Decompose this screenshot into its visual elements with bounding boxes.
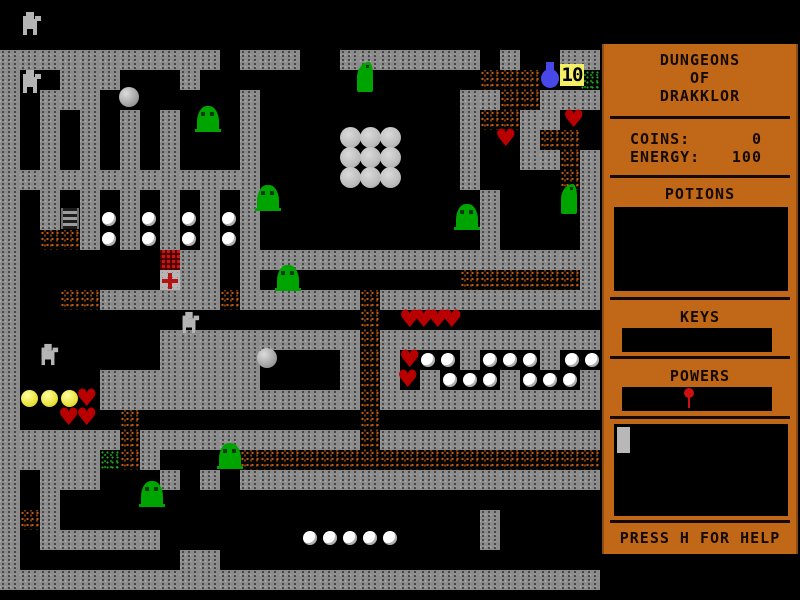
tile-wall xyxy=(80,450,100,470)
tile-wall xyxy=(200,210,220,230)
tile-wall xyxy=(0,350,20,370)
tile-wall xyxy=(440,470,460,490)
tile-wall xyxy=(60,450,80,470)
tile-dirt xyxy=(360,390,380,410)
tile-wall xyxy=(540,90,560,110)
tile-wall xyxy=(120,170,140,190)
tile-dirt xyxy=(360,410,380,430)
tile-wall xyxy=(260,430,280,450)
pearl-sprite xyxy=(102,232,116,246)
badge-sprite: 10 xyxy=(560,64,584,86)
tile-wall xyxy=(520,430,540,450)
tile-wall xyxy=(180,390,200,410)
tile-wall xyxy=(40,510,60,530)
tile-wall xyxy=(360,570,380,590)
tile-wall xyxy=(0,170,20,190)
tile-wall xyxy=(80,50,100,70)
game-title-line2: OF xyxy=(604,69,796,87)
tile-dirt xyxy=(360,350,380,370)
tile-wall xyxy=(0,430,20,450)
tile-wall xyxy=(80,90,100,110)
tile-wall xyxy=(160,210,180,230)
tile-wall xyxy=(540,250,560,270)
tile-wall xyxy=(0,490,20,510)
slime-sprite xyxy=(197,106,219,132)
tile-wall xyxy=(460,430,480,450)
tile-dirt xyxy=(460,450,480,470)
tile-dirt xyxy=(360,370,380,390)
tile-wall xyxy=(120,530,140,550)
keys-label: KEYS xyxy=(604,308,796,326)
pearl-sprite xyxy=(182,232,196,246)
tile-wall xyxy=(260,330,280,350)
tile-wall xyxy=(220,390,240,410)
tile-wall xyxy=(0,450,20,470)
tile-wall xyxy=(240,570,260,590)
tile-wall xyxy=(580,170,600,190)
tile-wall xyxy=(160,170,180,190)
pearl-sprite xyxy=(443,373,457,387)
tile-wall xyxy=(60,430,80,450)
tile-wall xyxy=(220,350,240,370)
tile-wall xyxy=(340,430,360,450)
tile-wall xyxy=(40,110,60,130)
tile-wall xyxy=(40,470,60,490)
tile-dirt xyxy=(520,70,540,90)
tile-wall xyxy=(120,290,140,310)
tile-wall xyxy=(160,110,180,130)
tile-wall xyxy=(80,110,100,130)
tile-moss xyxy=(100,450,120,470)
tile-wall xyxy=(480,230,500,250)
pearl-sprite xyxy=(503,353,517,367)
tile-wall xyxy=(240,470,260,490)
tile-wall xyxy=(200,330,220,350)
bigpearl-sprite xyxy=(340,167,361,188)
bigpearl-sprite xyxy=(380,127,401,148)
tile-dirt xyxy=(580,450,600,470)
tile-wall xyxy=(120,210,140,230)
tile-wall xyxy=(60,50,80,70)
tile-dirt xyxy=(360,290,380,310)
tile-wall xyxy=(440,430,460,450)
keys-box xyxy=(622,328,772,352)
tile-wall xyxy=(120,190,140,210)
tile-wall xyxy=(240,210,260,230)
tile-wall xyxy=(520,390,540,410)
pearl-sprite xyxy=(142,212,156,226)
tile-wall xyxy=(280,390,300,410)
tile-wall xyxy=(20,450,40,470)
tile-wall xyxy=(240,110,260,130)
tile-wall xyxy=(80,170,100,190)
tile-wall xyxy=(460,150,480,170)
tile-wall xyxy=(520,150,540,170)
pearl-sprite xyxy=(182,212,196,226)
tile-wall xyxy=(0,230,20,250)
boulder-sprite xyxy=(119,87,139,107)
pearl-sprite xyxy=(343,531,357,545)
tile-wall xyxy=(520,570,540,590)
tile-wall xyxy=(140,170,160,190)
tile-wall xyxy=(320,330,340,350)
tile-wall xyxy=(400,50,420,70)
tile-wall xyxy=(420,50,440,70)
tile-wall xyxy=(240,430,260,450)
tile-wall xyxy=(140,450,160,470)
pearl-sprite xyxy=(441,353,455,367)
tile-wall xyxy=(240,250,260,270)
tile-wall xyxy=(520,470,540,490)
tile-wall xyxy=(120,150,140,170)
tile-wall xyxy=(480,530,500,550)
tile-wall xyxy=(60,530,80,550)
tile-wall xyxy=(560,470,580,490)
tile-wall xyxy=(220,370,240,390)
tile-wall xyxy=(160,330,180,350)
tile-wall xyxy=(420,390,440,410)
tile-wall xyxy=(60,570,80,590)
slime-sprite xyxy=(141,481,163,507)
tile-wall xyxy=(160,50,180,70)
tile-wall xyxy=(20,170,40,190)
tile-wall xyxy=(540,290,560,310)
tile-wall xyxy=(300,570,320,590)
tile-wall xyxy=(0,130,20,150)
tile-dirt xyxy=(500,270,520,290)
tile-wall xyxy=(240,50,260,70)
tile-wall xyxy=(540,110,560,130)
tile-wall xyxy=(280,330,300,350)
tile-chest xyxy=(160,250,180,270)
tile-wall xyxy=(580,210,600,230)
tile-wall xyxy=(580,330,600,350)
robot-sprite xyxy=(22,12,38,35)
powers-box xyxy=(622,387,772,411)
tile-wall xyxy=(100,370,120,390)
tile-dirt xyxy=(220,290,240,310)
tile-wall xyxy=(460,290,480,310)
tile-wall xyxy=(120,110,140,130)
help-text: PRESS H FOR HELP xyxy=(604,529,796,547)
heart-sprite: ♥ xyxy=(397,370,417,390)
pearl-sprite xyxy=(363,531,377,545)
tile-wall xyxy=(0,330,20,350)
boulder-sprite xyxy=(257,348,277,368)
tile-wall xyxy=(140,370,160,390)
tile-wall xyxy=(160,130,180,150)
tile-dirt xyxy=(500,450,520,470)
tile-wall xyxy=(460,90,480,110)
slime-sprite xyxy=(219,443,241,469)
coins-stat: COINS: 0 xyxy=(630,130,762,148)
tile-wall xyxy=(340,50,360,70)
coins-value: 0 xyxy=(752,130,762,148)
pearl-sprite xyxy=(463,373,477,387)
tile-dirt xyxy=(120,430,140,450)
tile-wall xyxy=(200,370,220,390)
tile-dirt xyxy=(300,450,320,470)
tile-wall xyxy=(340,470,360,490)
dungeon-map: 10♥♥♥♥♥♥♥♥♥♥♥ xyxy=(0,0,600,600)
tile-wall xyxy=(240,130,260,150)
tile-wall xyxy=(380,470,400,490)
tile-wall xyxy=(180,350,200,370)
tile-dirt xyxy=(320,450,340,470)
tile-wall xyxy=(520,330,540,350)
pearl-sprite xyxy=(142,232,156,246)
tile-wall xyxy=(0,50,20,70)
tile-wall xyxy=(120,230,140,250)
tile-dirt xyxy=(520,90,540,110)
heart-sprite: ♥ xyxy=(495,129,515,149)
tile-wall xyxy=(500,570,520,590)
pearl-sprite xyxy=(483,353,497,367)
tile-wall xyxy=(420,330,440,350)
tile-wall xyxy=(500,330,520,350)
tile-wall xyxy=(20,430,40,450)
tile-wall xyxy=(100,50,120,70)
tile-wall xyxy=(520,250,540,270)
tile-wall xyxy=(580,570,600,590)
pearl-sprite xyxy=(523,373,537,387)
tile-wall xyxy=(0,110,20,130)
tile-wall xyxy=(0,550,20,570)
slime-sprite xyxy=(456,204,478,230)
tile-wall xyxy=(220,330,240,350)
tile-wall xyxy=(500,470,520,490)
tile-wall xyxy=(340,290,360,310)
tile-wall xyxy=(440,570,460,590)
tile-dirt xyxy=(420,450,440,470)
tile-wall xyxy=(100,570,120,590)
tile-wall xyxy=(180,70,200,90)
tile-wall xyxy=(100,290,120,310)
potions-box xyxy=(614,207,788,291)
tile-wall xyxy=(80,530,100,550)
tile-wall xyxy=(580,390,600,410)
tile-wall xyxy=(260,390,280,410)
tile-wall xyxy=(580,430,600,450)
tile-wall xyxy=(320,390,340,410)
tile-wall xyxy=(560,330,580,350)
tile-wall xyxy=(100,430,120,450)
game-title-line3: DRAKKLOR xyxy=(604,87,796,105)
tile-wall xyxy=(260,290,280,310)
tile-wall xyxy=(540,430,560,450)
tile-wall xyxy=(200,250,220,270)
tile-wall xyxy=(540,150,560,170)
coin-sprite xyxy=(41,390,58,407)
tile-dirt xyxy=(560,130,580,150)
power-pin-icon xyxy=(684,388,694,398)
robot-sprite xyxy=(22,70,38,93)
tile-wall xyxy=(300,390,320,410)
tile-wall xyxy=(580,370,600,390)
tile-wall xyxy=(80,210,100,230)
tile-wall xyxy=(260,50,280,70)
tile-wall xyxy=(560,250,580,270)
tile-wall xyxy=(400,390,420,410)
tile-wall xyxy=(0,470,20,490)
tile-wall xyxy=(260,470,280,490)
tile-wall xyxy=(480,210,500,230)
tile-wall xyxy=(60,170,80,190)
tile-wall xyxy=(160,470,180,490)
tile-dirt xyxy=(560,450,580,470)
tile-wall xyxy=(240,170,260,190)
pearl-sprite xyxy=(421,353,435,367)
tile-wall xyxy=(200,390,220,410)
tile-wall xyxy=(40,130,60,150)
tile-wall xyxy=(240,330,260,350)
tile-wall xyxy=(60,470,80,490)
energy-stat: ENERGY: 100 xyxy=(630,148,762,166)
tile-wall xyxy=(380,390,400,410)
tile-wall xyxy=(240,390,260,410)
tile-dirt xyxy=(20,510,40,530)
potions-label: POTIONS xyxy=(604,185,796,203)
tile-dirt xyxy=(560,270,580,290)
tile-wall xyxy=(60,90,80,110)
tile-wall xyxy=(440,330,460,350)
tile-dirt xyxy=(480,270,500,290)
tile-wall xyxy=(200,270,220,290)
tile-wall xyxy=(580,230,600,250)
tile-wall xyxy=(480,390,500,410)
tile-wall xyxy=(380,330,400,350)
tile-wall xyxy=(0,210,20,230)
tile-wall xyxy=(500,50,520,70)
tile-wall xyxy=(500,290,520,310)
tile-wall xyxy=(0,530,20,550)
tile-wall xyxy=(140,290,160,310)
tile-wall xyxy=(480,470,500,490)
tile-wall xyxy=(560,570,580,590)
tile-wall xyxy=(320,430,340,450)
pearl-sprite xyxy=(102,212,116,226)
tile-wall xyxy=(280,290,300,310)
tile-dirt xyxy=(400,450,420,470)
tile-wall xyxy=(460,250,480,270)
tile-wall xyxy=(500,370,520,390)
tile-wall xyxy=(300,250,320,270)
tile-wall xyxy=(180,550,200,570)
tile-wall xyxy=(400,570,420,590)
tile-wall xyxy=(120,370,140,390)
tile-wall xyxy=(40,430,60,450)
tile-wall xyxy=(200,570,220,590)
tile-wall xyxy=(180,50,200,70)
tile-dirt xyxy=(540,270,560,290)
tile-wall xyxy=(20,50,40,70)
tile-wall xyxy=(60,70,80,90)
tile-dirt xyxy=(480,450,500,470)
tile-wall xyxy=(520,130,540,150)
tile-dirt xyxy=(340,450,360,470)
tile-wall xyxy=(80,150,100,170)
tile-wall xyxy=(400,250,420,270)
tile-wall xyxy=(180,370,200,390)
statue-sprite xyxy=(182,312,197,333)
tile-wall xyxy=(380,290,400,310)
tile-wall xyxy=(460,130,480,150)
tile-wall xyxy=(400,470,420,490)
tile-wall xyxy=(380,570,400,590)
tile-wall xyxy=(0,510,20,530)
tile-wall xyxy=(260,570,280,590)
tile-wall xyxy=(300,430,320,450)
pearl-sprite xyxy=(563,373,577,387)
tile-wall xyxy=(480,250,500,270)
tile-wall xyxy=(580,470,600,490)
tile-dirt xyxy=(460,270,480,290)
tile-wall xyxy=(80,570,100,590)
tile-dirt xyxy=(360,310,380,330)
tile-wall xyxy=(180,430,200,450)
divider xyxy=(610,297,790,300)
tile-wall xyxy=(40,490,60,510)
tile-wall xyxy=(280,470,300,490)
tile-wall xyxy=(160,390,180,410)
tile-wall xyxy=(300,470,320,490)
divider xyxy=(610,116,790,119)
status-panel: DUNGEONS OF DRAKKLOR COINS: 0 ENERGY: 10… xyxy=(602,44,798,554)
dino-sprite xyxy=(357,62,373,92)
tile-wall xyxy=(460,50,480,70)
heart-sprite: ♥ xyxy=(58,408,78,428)
tile-wall xyxy=(220,170,240,190)
tile-wall xyxy=(160,290,180,310)
energy-label: ENERGY: xyxy=(630,148,700,166)
tile-dirt xyxy=(480,70,500,90)
tile-wall xyxy=(420,430,440,450)
jug-sprite xyxy=(540,62,560,88)
tile-wall xyxy=(580,250,600,270)
divider xyxy=(610,520,790,523)
tile-wall xyxy=(460,570,480,590)
tile-wall xyxy=(320,470,340,490)
tile-wall xyxy=(280,430,300,450)
tile-dirt xyxy=(540,130,560,150)
tile-wall xyxy=(0,90,20,110)
tile-wall xyxy=(340,390,360,410)
tile-wall xyxy=(540,570,560,590)
tile-wall xyxy=(360,250,380,270)
ladder-sprite xyxy=(61,208,79,229)
tile-wall xyxy=(240,150,260,170)
tile-wall xyxy=(540,350,560,370)
tile-wall xyxy=(520,290,540,310)
tile-wall xyxy=(120,390,140,410)
bigpearl-sprite xyxy=(360,147,381,168)
divider xyxy=(610,356,790,359)
tile-wall xyxy=(340,370,360,390)
tile-wall xyxy=(80,230,100,250)
game-title-line1: DUNGEONS xyxy=(604,51,796,69)
tile-wall xyxy=(560,390,580,410)
tile-wall xyxy=(40,210,60,230)
tile-wall xyxy=(320,250,340,270)
tile-wall xyxy=(80,130,100,150)
tile-wall xyxy=(420,470,440,490)
tile-wall xyxy=(40,190,60,210)
tile-wall xyxy=(0,390,20,410)
tile-wall xyxy=(160,350,180,370)
tile-dirt xyxy=(60,290,80,310)
tile-wall xyxy=(180,270,200,290)
tile-wall xyxy=(140,430,160,450)
